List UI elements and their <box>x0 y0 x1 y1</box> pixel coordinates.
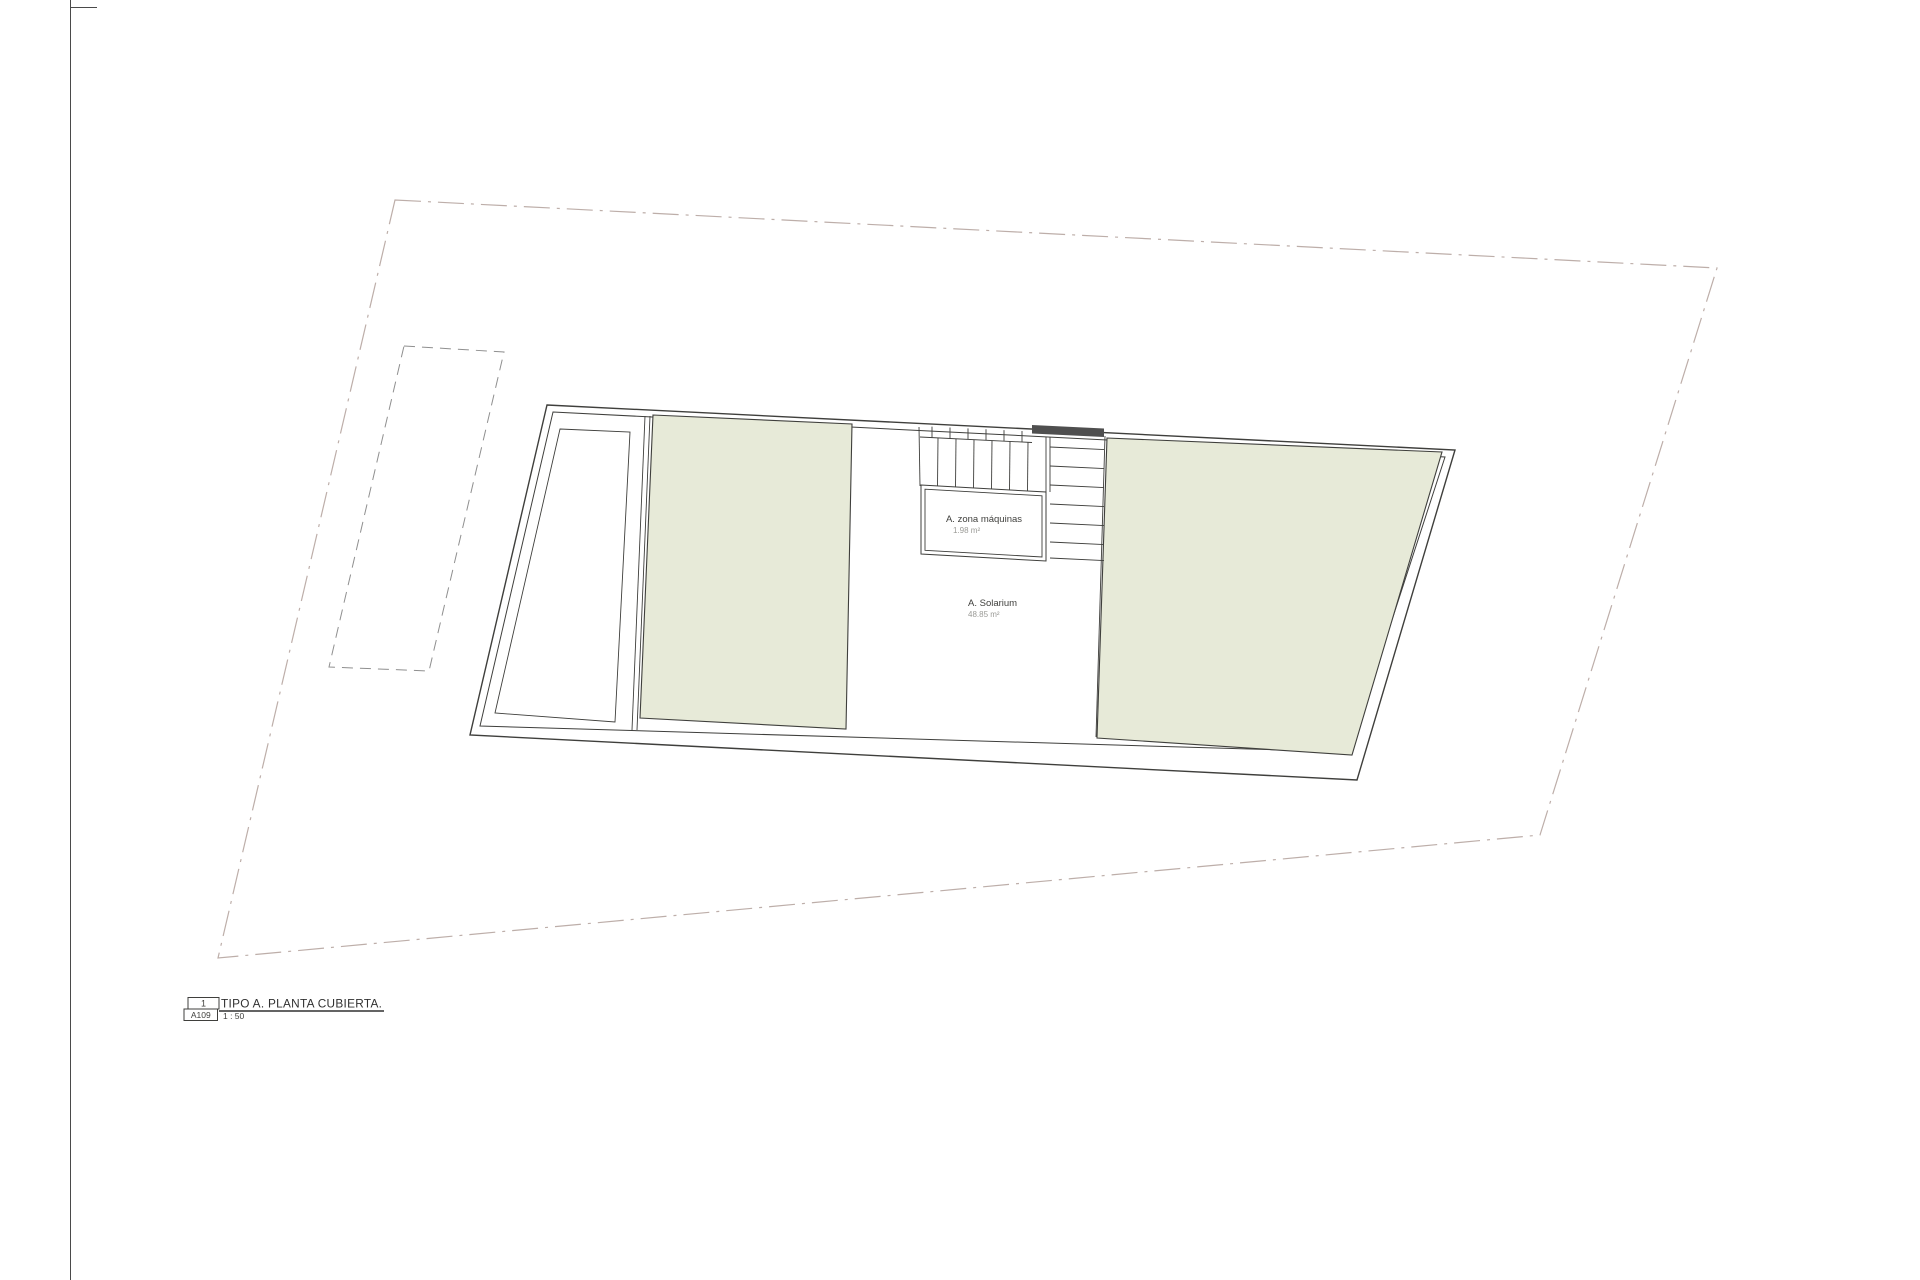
floor-plan-canvas: A. zona máquinas 1.98 m² A. Solarium 48.… <box>0 0 1920 1280</box>
machine-room-area-label: 1.98 m² <box>953 526 980 535</box>
stair-tread <box>938 438 939 486</box>
detail-number: 1 <box>201 999 206 1009</box>
stair-tread <box>1010 441 1011 490</box>
machine-room-label: A. zona máquinas <box>946 514 1022 525</box>
drawing-sheet: A. zona máquinas 1.98 m² A. Solarium 48.… <box>0 0 1920 1280</box>
solarium-label: A. Solarium <box>968 598 1017 609</box>
machine-room: A. zona máquinas 1.98 m² <box>921 485 1046 561</box>
stair-tread <box>974 440 975 488</box>
green-roof-left <box>640 415 852 729</box>
stair-tread <box>956 439 957 487</box>
solarium-area-label: 48.85 m² <box>968 610 1000 619</box>
sheet-border <box>71 0 98 1280</box>
parking-dashed-outline <box>329 346 504 671</box>
stair-tread <box>1028 442 1029 491</box>
stair-tread <box>992 441 993 490</box>
drawing-scale: 1 : 50 <box>223 1011 245 1021</box>
title-block: 1 A109 TIPO A. PLANTA CUBIERTA. 1 : 50 <box>184 997 384 1022</box>
drawing-title: TIPO A. PLANTA CUBIERTA. <box>221 997 382 1011</box>
green-roof-right <box>1097 438 1442 755</box>
sheet-code: A109 <box>191 1010 211 1020</box>
